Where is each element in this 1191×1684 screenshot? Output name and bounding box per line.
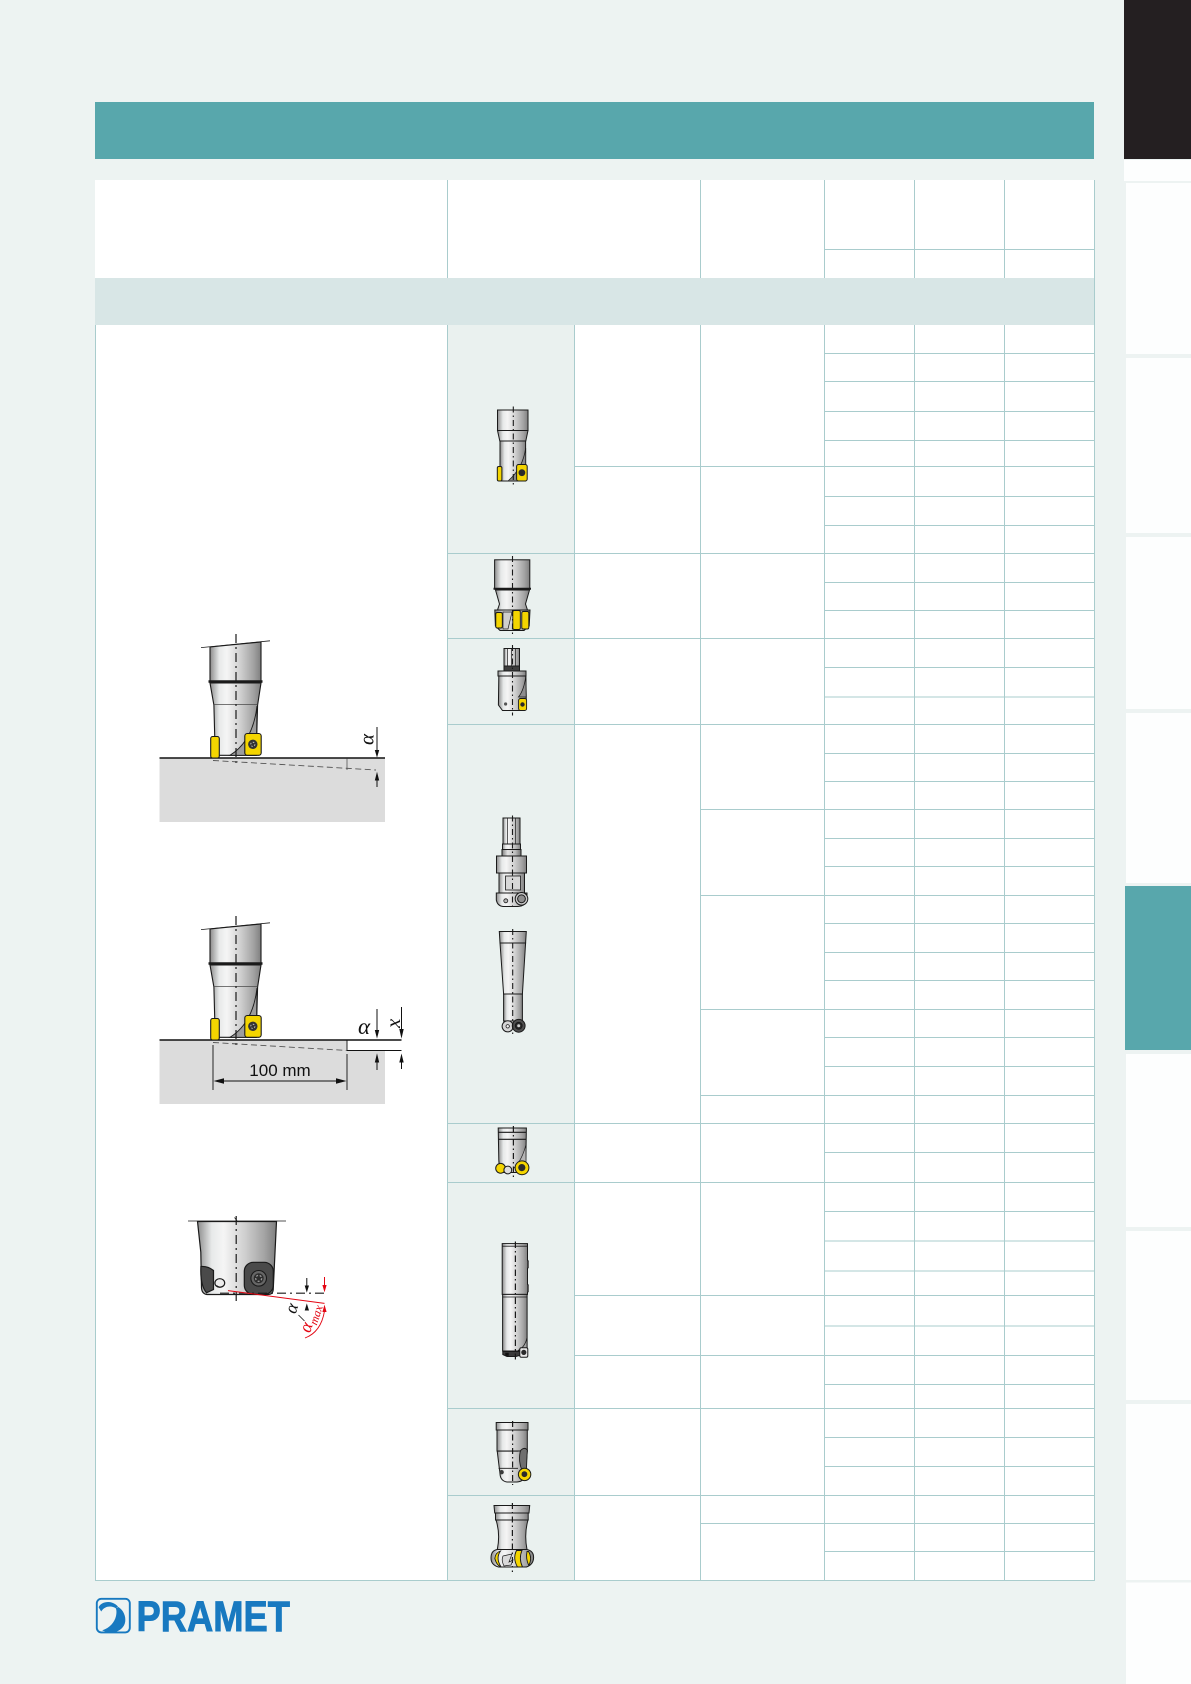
svg-text:PRAMET: PRAMET	[137, 1593, 291, 1641]
svg-text:α: α	[355, 733, 379, 745]
svg-text:α: α	[358, 1014, 371, 1039]
svg-text:100 mm: 100 mm	[249, 1061, 310, 1080]
